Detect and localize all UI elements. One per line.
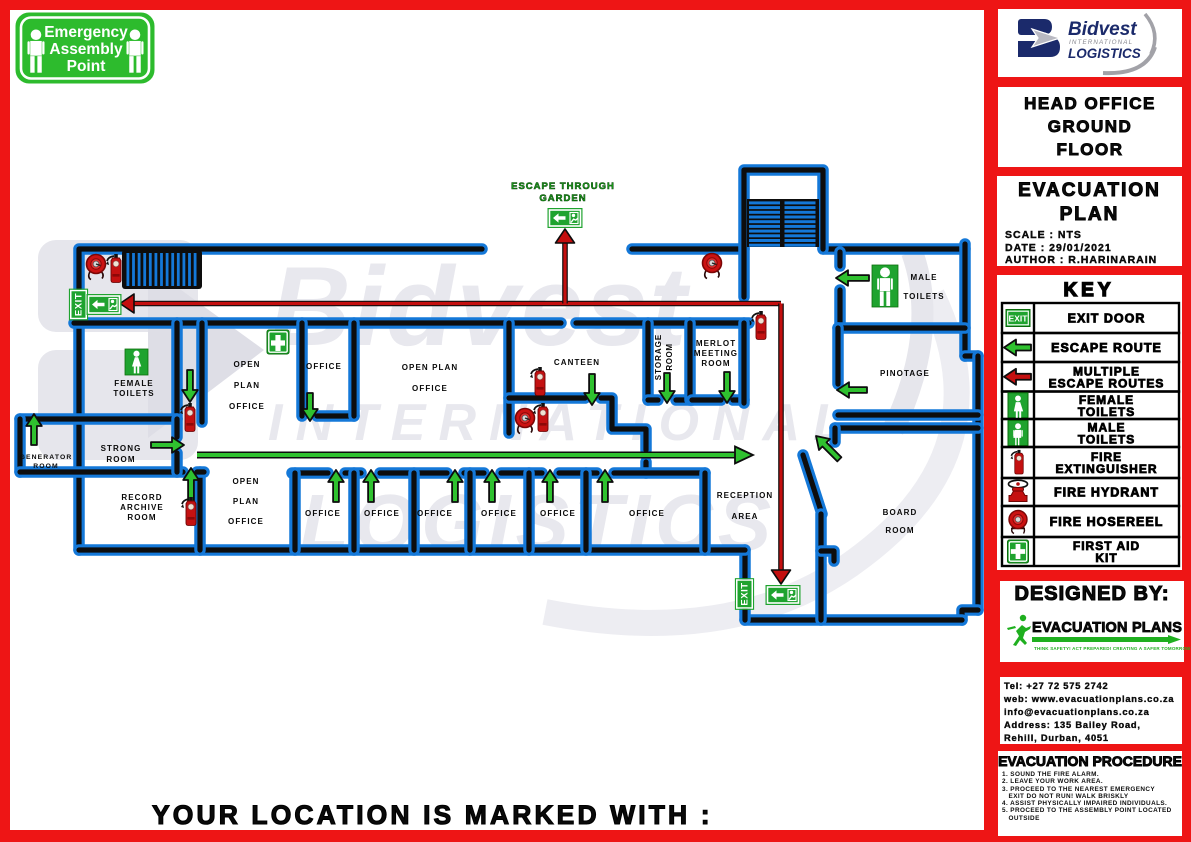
svg-text:KEY: KEY xyxy=(1063,280,1114,301)
svg-text:TOILETS: TOILETS xyxy=(903,292,944,301)
svg-text:PLAN: PLAN xyxy=(233,497,259,506)
svg-text:OFFICE: OFFICE xyxy=(229,402,265,411)
svg-text:PINOTAGE: PINOTAGE xyxy=(880,369,930,378)
svg-text:MEETING: MEETING xyxy=(694,349,738,358)
svg-text:MERLOT: MERLOT xyxy=(696,339,736,348)
svg-text:OFFICE: OFFICE xyxy=(540,509,576,518)
svg-text:TOILETS: TOILETS xyxy=(113,389,154,398)
svg-text:Bidvest: Bidvest xyxy=(270,244,691,369)
svg-text:AREA: AREA xyxy=(731,512,758,521)
svg-text:EXIT: EXIT xyxy=(1009,313,1029,323)
svg-text:GENERATOR: GENERATOR xyxy=(20,454,73,461)
svg-text:EXIT: EXIT xyxy=(74,293,85,316)
svg-text:STORAGE: STORAGE xyxy=(654,334,663,380)
svg-text:CANTEEN: CANTEEN xyxy=(554,358,600,367)
svg-text:EXIT: EXIT xyxy=(740,582,751,605)
svg-text:ROOM: ROOM xyxy=(33,463,59,470)
svg-text:STRONG: STRONG xyxy=(101,444,142,453)
svg-text:ROOM: ROOM xyxy=(885,526,914,535)
svg-text:Bidvest: Bidvest xyxy=(1068,19,1137,40)
svg-text:ESCAPE ROUTES: ESCAPE ROUTES xyxy=(1049,376,1165,390)
svg-text:ARCHIVE: ARCHIVE xyxy=(120,503,164,512)
svg-text:INTERNATIONAL: INTERNATIONAL xyxy=(1069,39,1133,46)
svg-text:EXIT DOOR: EXIT DOOR xyxy=(1068,312,1146,326)
svg-text:Emergency: Emergency xyxy=(44,24,128,41)
svg-text:OFFICE: OFFICE xyxy=(481,509,517,518)
svg-text:OPEN: OPEN xyxy=(233,360,260,369)
svg-text:FIRE HOSEREEL: FIRE HOSEREEL xyxy=(1050,515,1164,529)
svg-text:LOGISTICS: LOGISTICS xyxy=(1068,46,1141,61)
svg-text:BOARD: BOARD xyxy=(883,508,918,517)
svg-text:OFFICE: OFFICE xyxy=(228,517,264,526)
svg-text:RECORD: RECORD xyxy=(121,493,162,502)
svg-text:MALE: MALE xyxy=(910,273,937,282)
svg-text:OFFICE: OFFICE xyxy=(629,509,665,518)
svg-text:RECEPTION: RECEPTION xyxy=(717,491,774,500)
svg-text:ROOM: ROOM xyxy=(127,513,156,522)
svg-text:OFFICE: OFFICE xyxy=(364,509,400,518)
svg-text:OFFICE: OFFICE xyxy=(412,384,448,393)
svg-text:ROOM: ROOM xyxy=(665,343,674,370)
svg-text:KIT: KIT xyxy=(1095,551,1117,565)
svg-text:FEMALE: FEMALE xyxy=(114,379,154,388)
svg-text:GARDEN: GARDEN xyxy=(539,193,586,204)
svg-text:TOILETS: TOILETS xyxy=(1078,433,1135,447)
svg-text:YOUR LOCATION IS MARKED WITH :: YOUR LOCATION IS MARKED WITH : xyxy=(152,800,713,830)
svg-text:PLAN: PLAN xyxy=(234,381,260,390)
svg-text:TOILETS: TOILETS xyxy=(1078,405,1135,419)
svg-text:OPEN: OPEN xyxy=(232,477,259,486)
svg-text:ESCAPE THROUGH: ESCAPE THROUGH xyxy=(511,181,615,192)
svg-text:OPEN PLAN: OPEN PLAN xyxy=(402,363,459,372)
svg-text:ROOM: ROOM xyxy=(701,359,730,368)
svg-text:ROOM: ROOM xyxy=(106,455,135,464)
svg-text:Assembly: Assembly xyxy=(49,41,123,58)
svg-text:EXTINGUISHER: EXTINGUISHER xyxy=(1055,462,1157,476)
svg-text:FIRE HYDRANT: FIRE HYDRANT xyxy=(1054,486,1159,500)
svg-text:OFFICE: OFFICE xyxy=(305,509,341,518)
svg-text:OFFICE: OFFICE xyxy=(417,509,453,518)
svg-text:ESCAPE ROUTE: ESCAPE ROUTE xyxy=(1051,341,1162,355)
svg-text:OFFICE: OFFICE xyxy=(306,362,342,371)
svg-text:Point: Point xyxy=(67,58,106,75)
